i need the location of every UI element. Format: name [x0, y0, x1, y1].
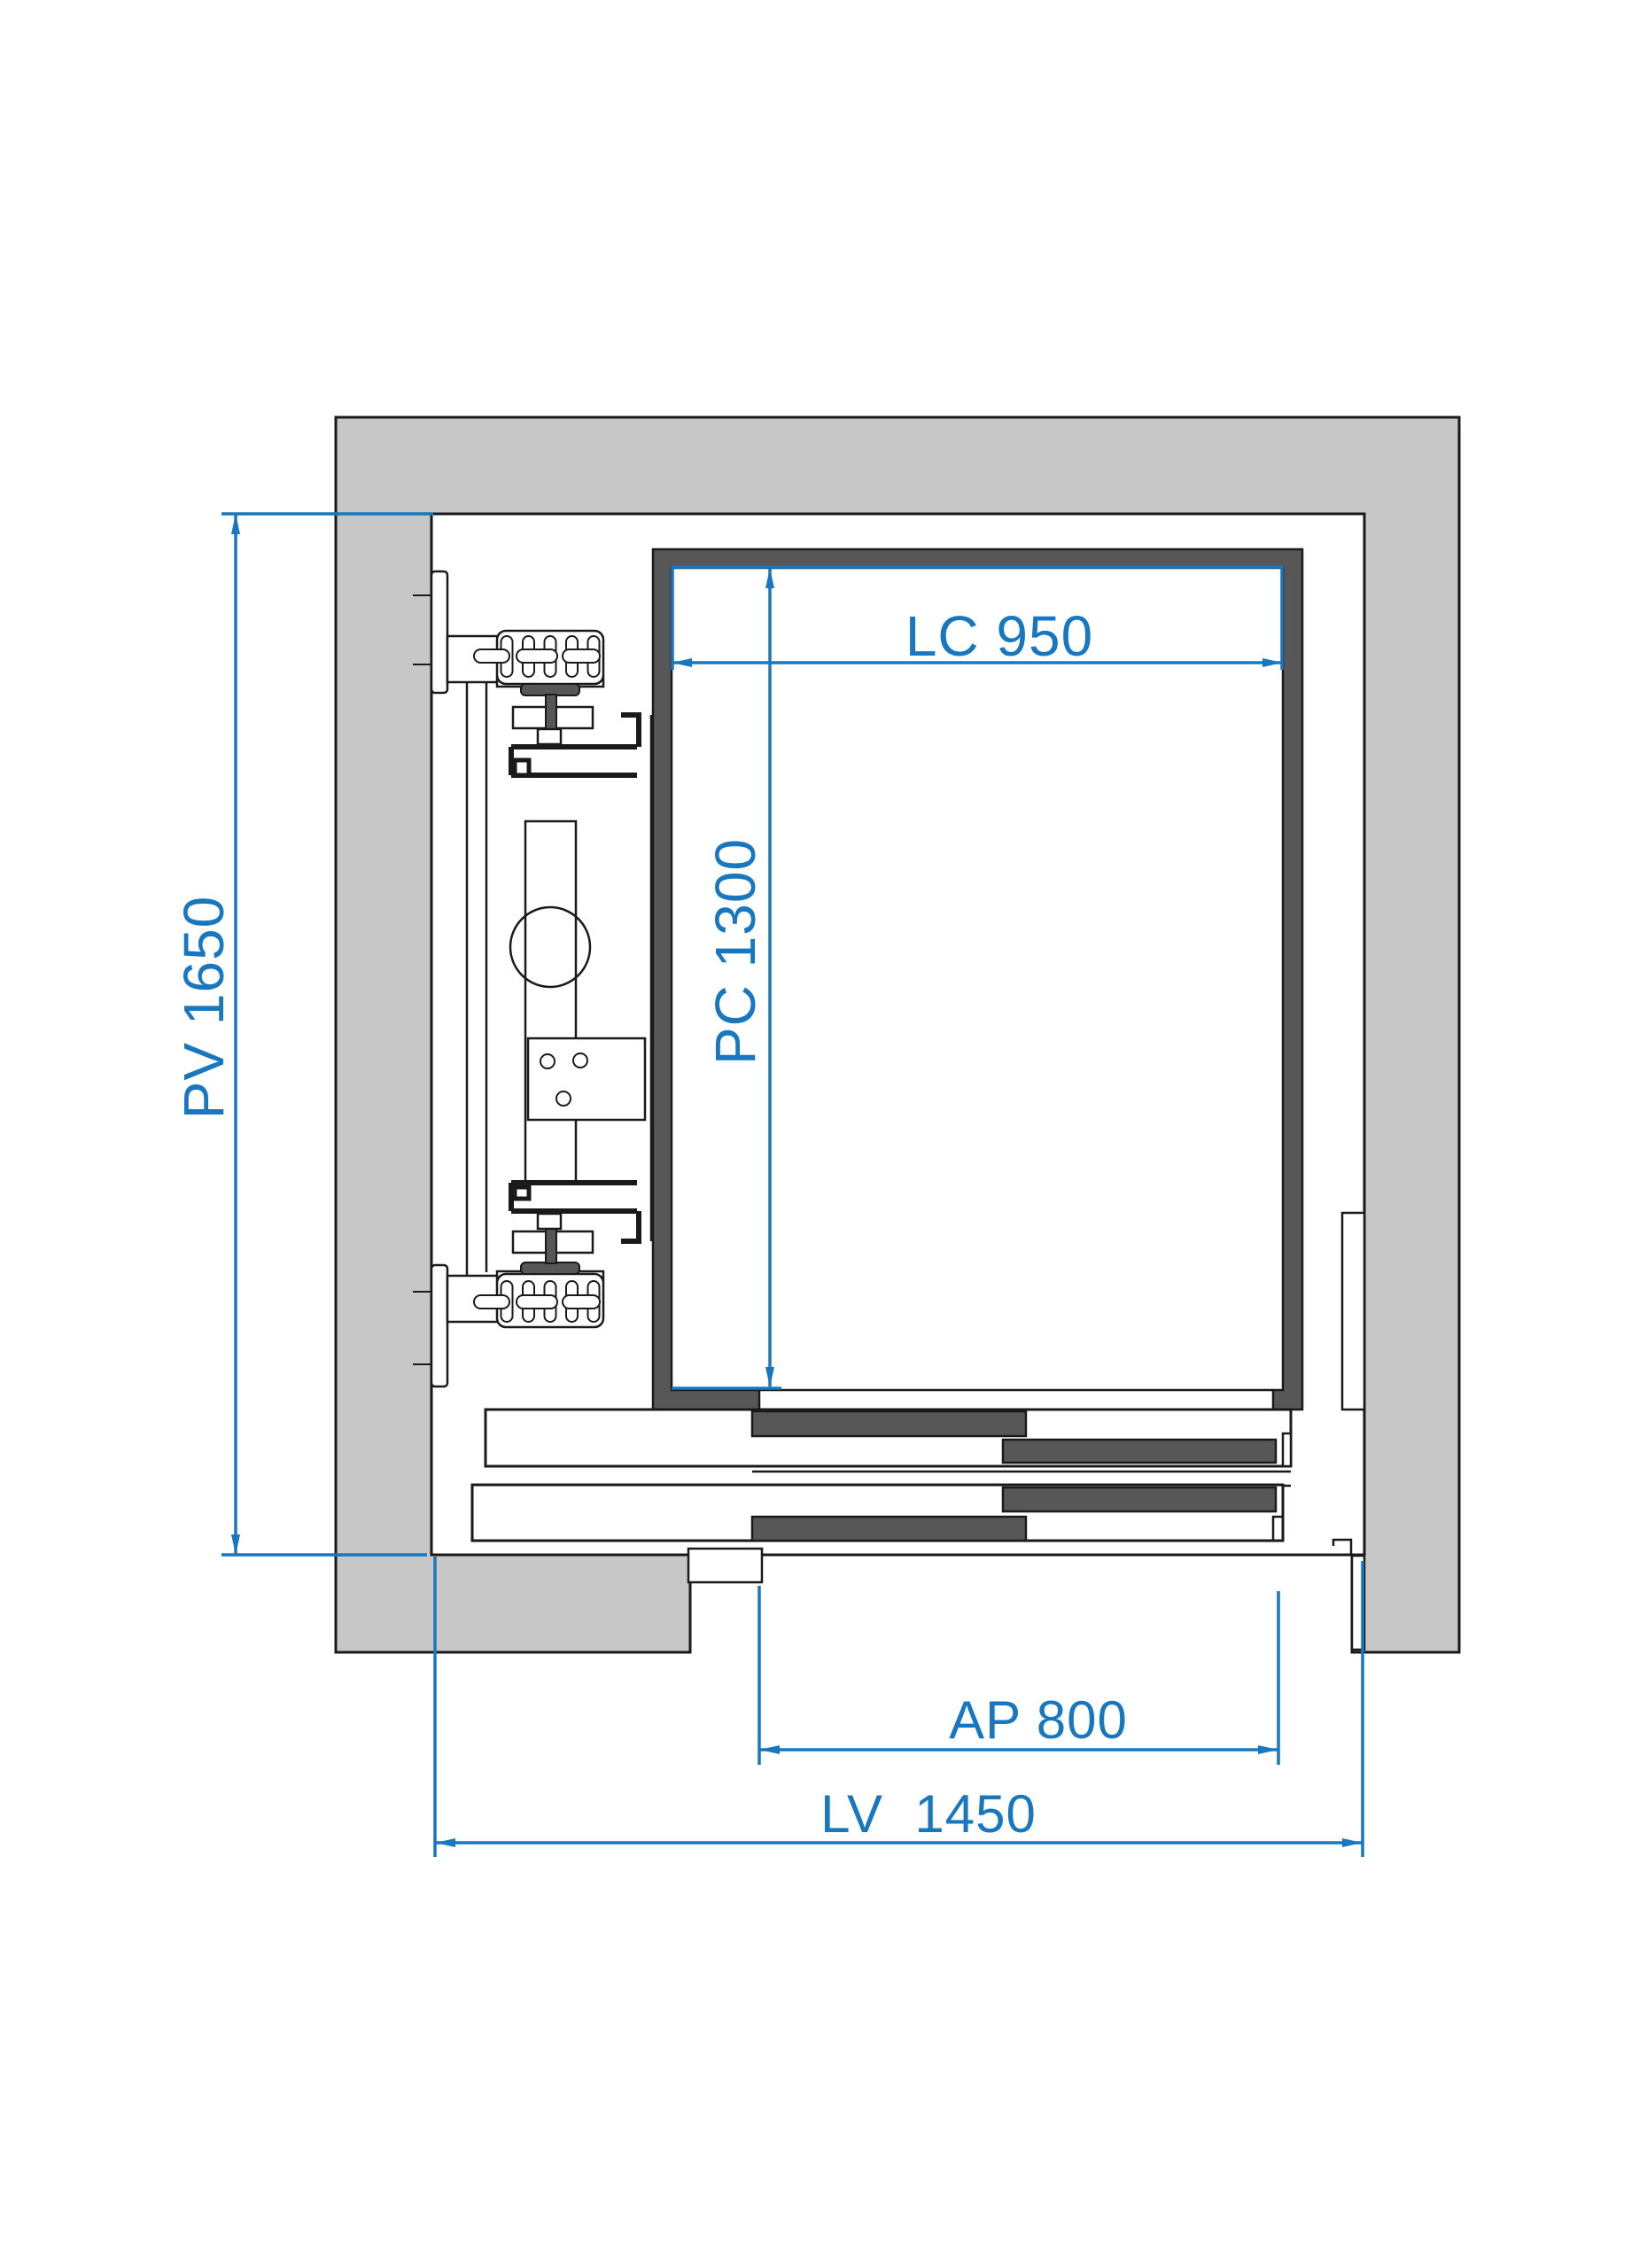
bolt-hole	[573, 1053, 587, 1068]
cabin-sill-tab	[1283, 1433, 1291, 1466]
dimension-ap-label: AP 800	[949, 1690, 1128, 1750]
roller-channel	[525, 821, 576, 1183]
shoe-block	[538, 1214, 561, 1229]
cabin-door-panel-rear	[752, 1411, 1026, 1436]
rail-stem	[546, 695, 556, 731]
dimension-pc-label: PC 1300	[703, 838, 767, 1065]
arrow-right	[1342, 1838, 1363, 1847]
arrow-left	[672, 658, 692, 667]
technical-drawing: PV 1650 LC 950 PC 1300 AP 800 LV 1450	[0, 0, 1647, 2268]
arrow-right	[1262, 658, 1283, 667]
arrow-up	[231, 514, 240, 534]
door-jamb-left	[688, 1549, 762, 1582]
shoe-block	[538, 729, 561, 744]
wall-plate	[431, 1265, 447, 1386]
arrow-up	[765, 568, 774, 588]
landing-door-pocket	[1342, 1213, 1364, 1410]
door-jamb-right-profile	[1333, 1540, 1351, 1556]
motor-plate	[528, 1038, 645, 1120]
arrow-right	[1258, 1745, 1278, 1754]
bolt-hole	[540, 1054, 555, 1068]
arrow-left	[759, 1745, 780, 1754]
arrow-down	[765, 1367, 774, 1387]
dimension-pv-label: PV 1650	[172, 896, 236, 1120]
arrow-left	[435, 1838, 455, 1847]
landing-door-panel-rear	[1003, 1487, 1276, 1511]
guide-rail-bracket-top	[413, 571, 603, 744]
landing-door-panel-front	[752, 1517, 1026, 1541]
wall-plate	[431, 571, 447, 693]
cabin-door-panel-front	[1003, 1440, 1276, 1463]
guide-rail-bracket-bottom	[413, 1214, 603, 1386]
dimension-lc-label: LC 950	[905, 604, 1093, 668]
machinery	[413, 571, 651, 1386]
bolt-hole	[556, 1091, 571, 1106]
drawing-canvas: PV 1650 LC 950 PC 1300 AP 800 LV 1450	[0, 0, 1647, 2268]
dimension-lv-label: LV 1450	[820, 1784, 1037, 1844]
rail-stem	[546, 1227, 556, 1263]
arrow-down	[231, 1534, 240, 1555]
